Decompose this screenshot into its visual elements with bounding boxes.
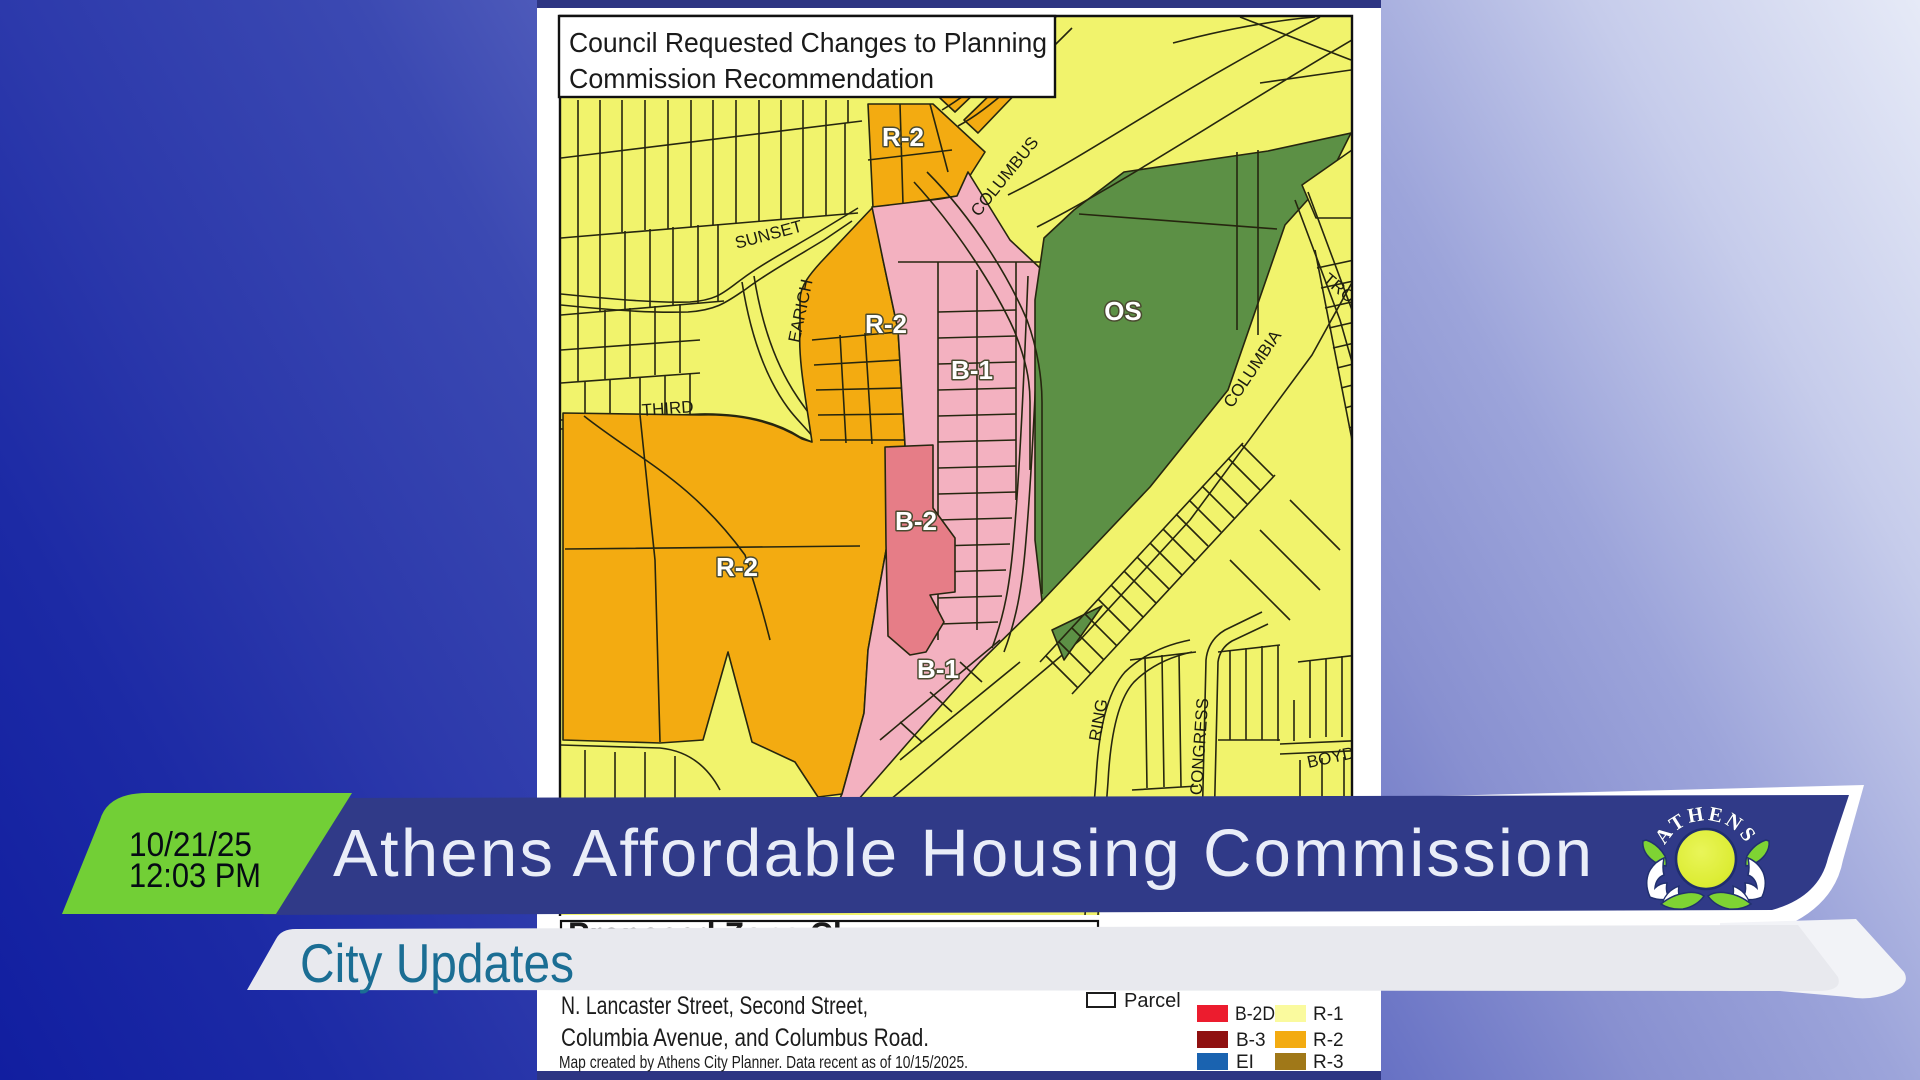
svg-text:Athens Affordable Housing Comm: Athens Affordable Housing Commission (333, 816, 1592, 891)
svg-text:R-3: R-3 (1313, 1052, 1344, 1073)
svg-text:Council Requested Changes to P: Council Requested Changes to Planning (569, 27, 1047, 58)
svg-text:Columbia Avenue, and Columbus: Columbia Avenue, and Columbus Road. (561, 1024, 929, 1052)
svg-text:Map created by Athens City Pla: Map created by Athens City Planner. Data… (559, 1052, 968, 1072)
svg-text:N. Lancaster Street, Second St: N. Lancaster Street, Second Street, (561, 992, 868, 1020)
svg-text:EI: EI (1236, 1052, 1254, 1073)
svg-text:Parcel: Parcel (1124, 990, 1181, 1012)
svg-text:B-3: B-3 (1236, 1030, 1266, 1051)
svg-text:B-1: B-1 (917, 654, 959, 684)
svg-text:B-2D: B-2D (1235, 1004, 1275, 1025)
svg-text:OS: OS (1104, 296, 1142, 326)
svg-text:R-2: R-2 (865, 309, 907, 339)
svg-text:Commission Recommendation: Commission Recommendation (569, 63, 934, 94)
svg-text:R-2: R-2 (716, 552, 758, 582)
svg-text:R-2: R-2 (1313, 1030, 1344, 1051)
svg-text:City Updates: City Updates (300, 932, 574, 994)
svg-text:B-2: B-2 (895, 506, 937, 536)
svg-text:12:03 PM: 12:03 PM (129, 857, 261, 895)
svg-text:B-1: B-1 (951, 355, 993, 385)
svg-text:R-2: R-2 (882, 122, 924, 152)
svg-text:R-1: R-1 (1313, 1004, 1344, 1025)
svg-text:THIRD: THIRD (641, 397, 694, 420)
